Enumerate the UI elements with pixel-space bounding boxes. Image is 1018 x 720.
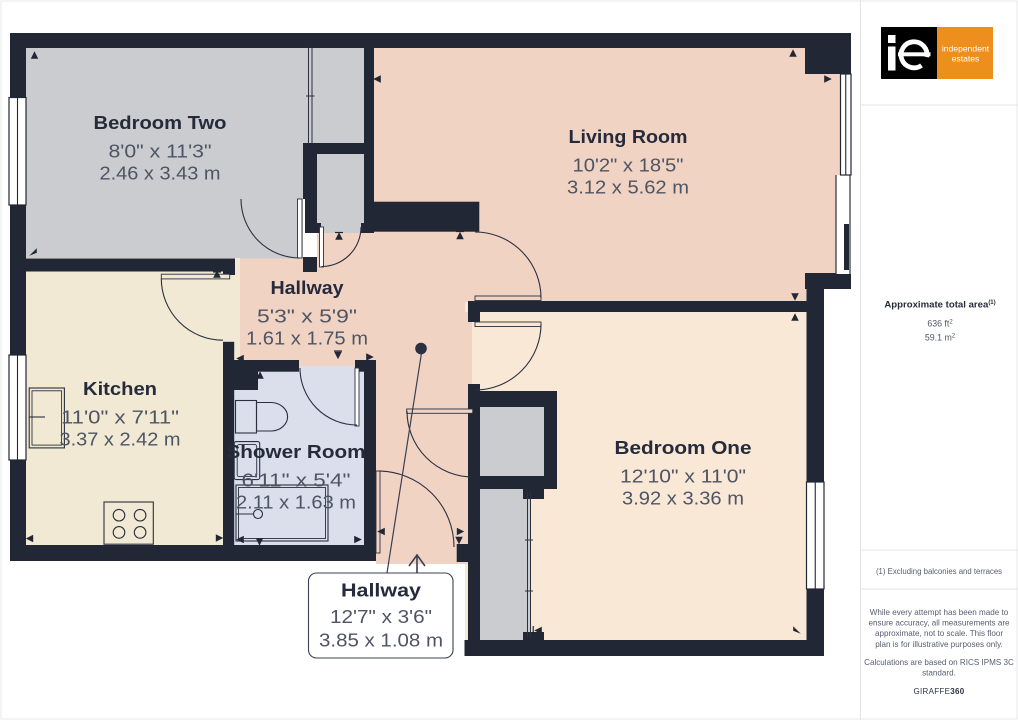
svg-text:1.61 x 1.75 m: 1.61 x 1.75 m bbox=[246, 328, 368, 349]
svg-text:Shower Room: Shower Room bbox=[227, 441, 366, 462]
svg-text:12'7" x 3'6": 12'7" x 3'6" bbox=[330, 606, 432, 627]
svg-text:10'2" x 18'5": 10'2" x 18'5" bbox=[573, 155, 684, 176]
svg-text:standard.: standard. bbox=[922, 669, 956, 678]
svg-text:6'11" x 5'4": 6'11" x 5'4" bbox=[242, 470, 351, 491]
svg-text:While every attempt has been m: While every attempt has been made to bbox=[870, 608, 1009, 617]
svg-text:Hallway: Hallway bbox=[341, 580, 422, 601]
svg-text:GIRAFFE360: GIRAFFE360 bbox=[913, 687, 964, 696]
svg-text:3.85 x 1.08 m: 3.85 x 1.08 m bbox=[319, 630, 443, 651]
svg-text:Hallway: Hallway bbox=[271, 277, 345, 298]
svg-text:Approximate total area(1): Approximate total area(1) bbox=[884, 300, 995, 311]
svg-text:11'0" x 7'11": 11'0" x 7'11" bbox=[61, 407, 179, 428]
svg-text:Kitchen: Kitchen bbox=[83, 378, 157, 399]
svg-text:Calculations are based on RICS: Calculations are based on RICS IPMS 3C bbox=[864, 658, 1014, 667]
svg-text:ensure accuracy, all measureme: ensure accuracy, all measurements are bbox=[868, 619, 1010, 628]
svg-text:3.12 x 5.62 m: 3.12 x 5.62 m bbox=[567, 177, 689, 198]
svg-text:2.11 x 1.63 m: 2.11 x 1.63 m bbox=[236, 492, 356, 513]
svg-text:59.1 m2: 59.1 m2 bbox=[925, 333, 956, 343]
svg-text:3.92 x 3.36 m: 3.92 x 3.36 m bbox=[622, 488, 744, 509]
svg-text:independent: independent bbox=[942, 43, 990, 53]
svg-text:2.46 x 3.43 m: 2.46 x 3.43 m bbox=[100, 163, 221, 184]
svg-text:Bedroom One: Bedroom One bbox=[615, 437, 752, 458]
svg-text:3.37 x 2.42 m: 3.37 x 2.42 m bbox=[60, 429, 181, 450]
svg-text:Living Room: Living Room bbox=[569, 126, 688, 147]
svg-text:(1) Excluding balconies and te: (1) Excluding balconies and terraces bbox=[876, 567, 1002, 576]
svg-text:approximate, not to scale. Thi: approximate, not to scale. This floor bbox=[875, 629, 1003, 638]
svg-text:12'10" x 11'0": 12'10" x 11'0" bbox=[620, 466, 746, 487]
svg-text:8'0" x 11'3": 8'0" x 11'3" bbox=[109, 141, 212, 162]
svg-text:Bedroom Two: Bedroom Two bbox=[94, 112, 227, 133]
svg-text:plan is for illustrative purpo: plan is for illustrative purposes only. bbox=[875, 640, 1003, 649]
svg-text:5'3" x 5'9": 5'3" x 5'9" bbox=[257, 306, 357, 327]
svg-text:estates: estates bbox=[952, 54, 980, 64]
